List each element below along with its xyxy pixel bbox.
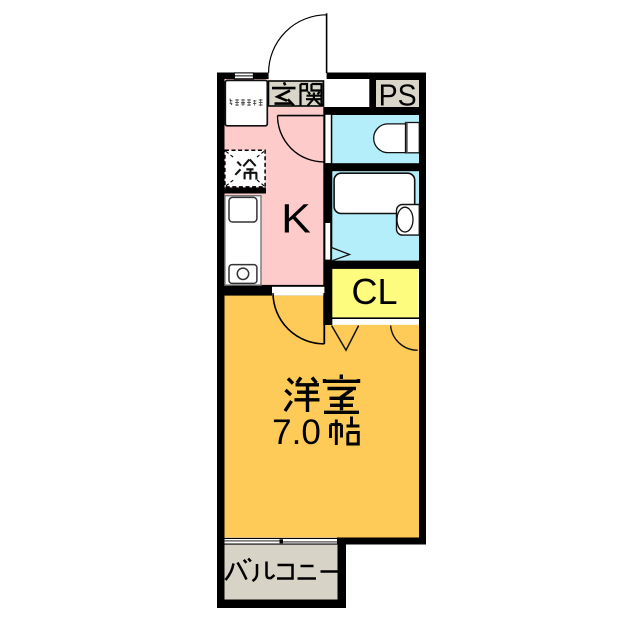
svg-text:PS: PS [379,79,417,113]
svg-text:7.0: 7.0 [272,413,321,452]
svg-text:CL: CL [351,271,397,312]
svg-text:K: K [281,197,311,243]
